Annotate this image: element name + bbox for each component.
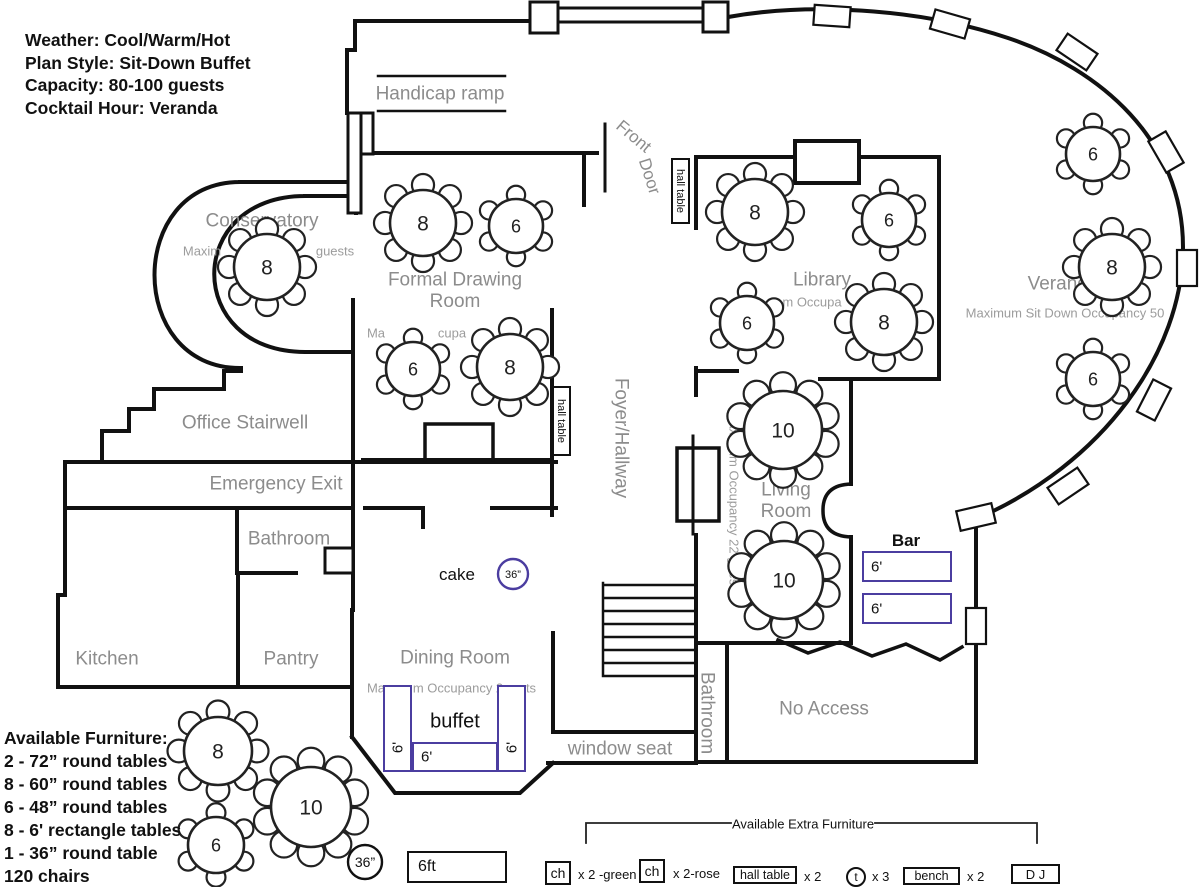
veranda-table-2-seat-count: 8 (1106, 256, 1118, 279)
buffet-table-bottom: 6' (412, 742, 498, 772)
formal-drawing-occupancy-left-label: Ma (367, 326, 386, 341)
foyer-hallway-label: Foyer/Hallway (610, 378, 631, 499)
library-table-2: 6 (853, 180, 925, 261)
legend-chair-green-note: x 2 -green (578, 867, 637, 882)
furniture-item: 1 - 36” round table (4, 842, 181, 865)
bathroom-left-label: Bathroom (248, 529, 330, 550)
bar-table-2-size: 6' (871, 600, 882, 617)
library-table-3-seat-count: 6 (742, 313, 752, 333)
no-access-label: No Access (779, 699, 869, 720)
veranda-table-1-seat-count: 6 (1088, 144, 1098, 164)
legend-hall-table-note: x 2 (804, 869, 821, 884)
plan-style-line: Plan Style: Sit-Down Buffet (25, 52, 251, 75)
window-marker (956, 503, 996, 531)
porch-post (530, 2, 558, 33)
library-table-1-seat-count: 8 (749, 201, 761, 224)
office-stairwell-label: Office Stairwell (182, 413, 308, 434)
handicap-ramp-label: Handicap ramp (376, 84, 505, 105)
available-furniture-panel: Available Furniture: 2 - 72” round table… (4, 727, 181, 887)
veranda-table-2: 8 (1063, 218, 1161, 316)
spare-table-1: 8 (167, 700, 268, 801)
library-table-3: 6 (711, 283, 783, 364)
window-marker (1148, 131, 1183, 172)
spare-table-1-seat-count: 8 (212, 740, 224, 763)
spare-table-3: 10 (254, 748, 368, 867)
legend-bench-note: x 2 (967, 869, 984, 884)
drawing-room-table-4-seat-count: 8 (504, 356, 516, 379)
formal-drawing-room-label: Formal DrawingRoom (388, 269, 522, 312)
furniture-item: 8 - 60” round tables (4, 773, 181, 796)
weather-line: Weather: Cool/Warm/Hot (25, 29, 251, 52)
bathroom-right-label: Bathroom (696, 672, 717, 754)
drawing-room-table-1-seat-count: 8 (417, 212, 429, 235)
cake-table-size-label: 36” (505, 569, 521, 581)
drawing-room-table-1: 8 (374, 174, 472, 272)
drawing-room-table-2-seat-count: 6 (511, 216, 521, 236)
window-marker (813, 5, 850, 27)
veranda-table-1: 6 (1057, 114, 1129, 195)
cake-table: 36” (498, 559, 528, 589)
legend-6ft-label: 6ft (418, 858, 436, 876)
porch-post (703, 2, 728, 32)
front-door-word-1-label: Front (612, 116, 655, 156)
legend-hall-table-box: hall table (733, 866, 797, 884)
emergency-exit-label: Emergency Exit (209, 474, 343, 495)
veranda-table-3-seat-count: 6 (1088, 369, 1098, 389)
dining-room-label: Dining Room (400, 648, 510, 669)
hall-table-front-door: hall table (671, 158, 690, 224)
window-marker (1177, 250, 1197, 286)
legend-chair-rose-note: x 2-rose (673, 866, 720, 881)
living-room-table-2-seat-count: 10 (772, 569, 795, 592)
legend-t-circle: t (846, 867, 866, 887)
furniture-item: 8 - 6' rectangle tables (4, 819, 181, 842)
dining-occupancy-mid-label: m Occupancy 2 (413, 681, 503, 696)
bar-table-1-size: 6' (871, 558, 882, 575)
window-marker (966, 608, 986, 644)
extra-furniture-title: Available Extra Furniture (732, 817, 874, 832)
legend-t-note: x 3 (872, 869, 889, 884)
legend-chair-green-box: ch (545, 861, 571, 885)
living-room-table-1: 10 (727, 372, 838, 488)
conservatory-occupancy-right-label: guests (316, 244, 355, 259)
legend-chair-rose-box: ch (639, 859, 665, 883)
furniture-title: Available Furniture: (4, 727, 181, 750)
window-seat-label: window seat (567, 739, 673, 760)
library-table-1: 8 (706, 163, 804, 261)
drawing-room-table-3-seat-count: 6 (408, 359, 418, 379)
bar-table-1: 6' (862, 551, 952, 582)
cocktail-hour-line: Cocktail Hour: Veranda (25, 97, 251, 120)
spare-table-2-seat-count: 6 (211, 835, 221, 855)
veranda-occupancy-label: Maximum Sit Down Occupancy 50 (966, 306, 1165, 321)
buffet-table-left: 6' (383, 685, 412, 772)
bar-table-2: 6' (862, 593, 952, 624)
spare-table-2: 6 (179, 803, 254, 886)
library-occupancy-label: m Occupa (782, 295, 842, 310)
formal-drawing-occupancy-right-label: cupa (438, 326, 467, 341)
library-label: Library (793, 270, 852, 291)
dining-occupancy-right-label: ts (526, 681, 537, 696)
buffet-table-right-size: 6' (503, 742, 520, 753)
cake-label: cake (439, 565, 475, 585)
floor-plan-canvas: ConservatoryFormal DrawingRoomLibraryVer… (0, 0, 1200, 887)
window-marker (1137, 379, 1171, 420)
drawing-room-table-2: 6 (480, 186, 552, 267)
foyer-console-table (677, 448, 719, 521)
conservatory-table: 8 (218, 218, 316, 316)
window-marker (1056, 34, 1097, 71)
legend-36-table-size-label: 36” (355, 854, 376, 870)
hall-table-foyer: hall table (552, 386, 571, 456)
bar-label: Bar (892, 531, 920, 551)
drawing-room-table-4: 8 (461, 318, 559, 416)
legend-36-table: 36” (348, 845, 382, 879)
conservatory-occupancy-left-label: Maxim (183, 244, 221, 259)
living-room-table-2: 10 (728, 522, 839, 638)
legend-dj-box: D J (1011, 864, 1060, 884)
fireplace (795, 141, 859, 183)
library-table-4-seat-count: 8 (878, 311, 890, 334)
capacity-line: Capacity: 80-100 guests (25, 74, 251, 97)
buffet-table-right: 6' (497, 685, 526, 772)
library-table-2-seat-count: 6 (884, 210, 894, 230)
buffet-label: buffet (430, 711, 480, 734)
bathroom-fixture (325, 548, 353, 573)
drawing-room-table-3: 6 (377, 329, 449, 410)
legend-bench-box: bench (903, 867, 960, 885)
front-door-word-2-label: Door (635, 156, 665, 197)
buffet-table-bottom-size: 6' (421, 749, 432, 766)
ramp-step (348, 113, 361, 213)
veranda-table-3: 6 (1057, 339, 1129, 420)
library-table-4: 8 (835, 273, 933, 371)
kitchen-label: Kitchen (75, 649, 138, 670)
living-room-table-1-seat-count: 10 (771, 419, 794, 442)
furniture-item: 120 chairs (4, 865, 181, 887)
pantry-label: Pantry (264, 649, 319, 670)
spare-table-3-seat-count: 10 (299, 796, 322, 819)
furniture-item: 6 - 48” round tables (4, 796, 181, 819)
furniture-item: 2 - 72” round tables (4, 750, 181, 773)
buffet-table-left-size: 6' (389, 742, 406, 753)
conservatory-table-seat-count: 8 (261, 256, 273, 279)
window-marker (930, 9, 970, 38)
legend-6ft-table: 6ft (407, 851, 507, 883)
plan-info-panel: Weather: Cool/Warm/Hot Plan Style: Sit-D… (25, 29, 251, 119)
ramp-step (361, 113, 373, 154)
